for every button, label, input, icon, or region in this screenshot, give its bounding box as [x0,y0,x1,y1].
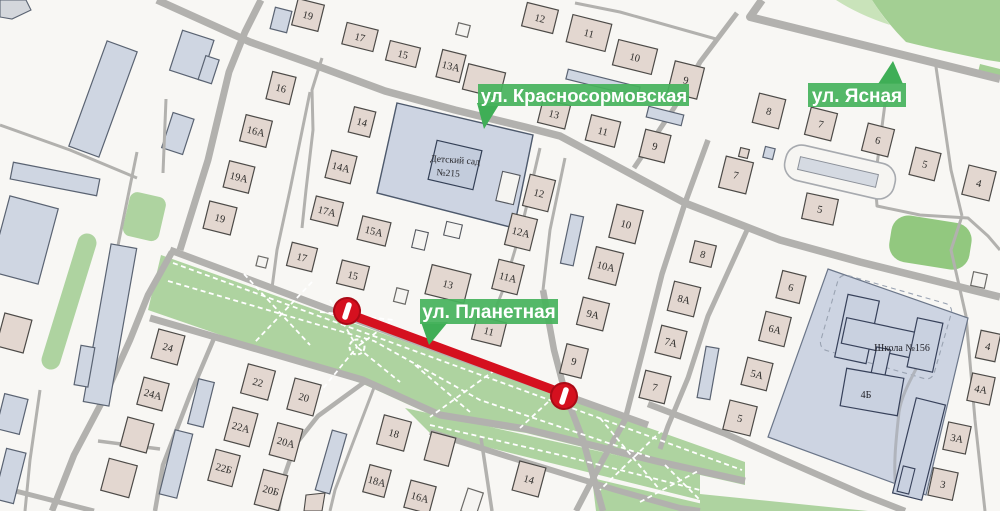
svg-text:4Б: 4Б [861,390,872,401]
svg-text:ул. Планетная: ул. Планетная [422,302,555,323]
svg-text:№215: №215 [436,168,460,180]
svg-text:Школа №156: Школа №156 [874,343,930,354]
svg-text:ул. Ясная: ул. Ясная [812,86,902,107]
svg-text:ул. Красносормовская: ул. Красносормовская [481,85,687,106]
